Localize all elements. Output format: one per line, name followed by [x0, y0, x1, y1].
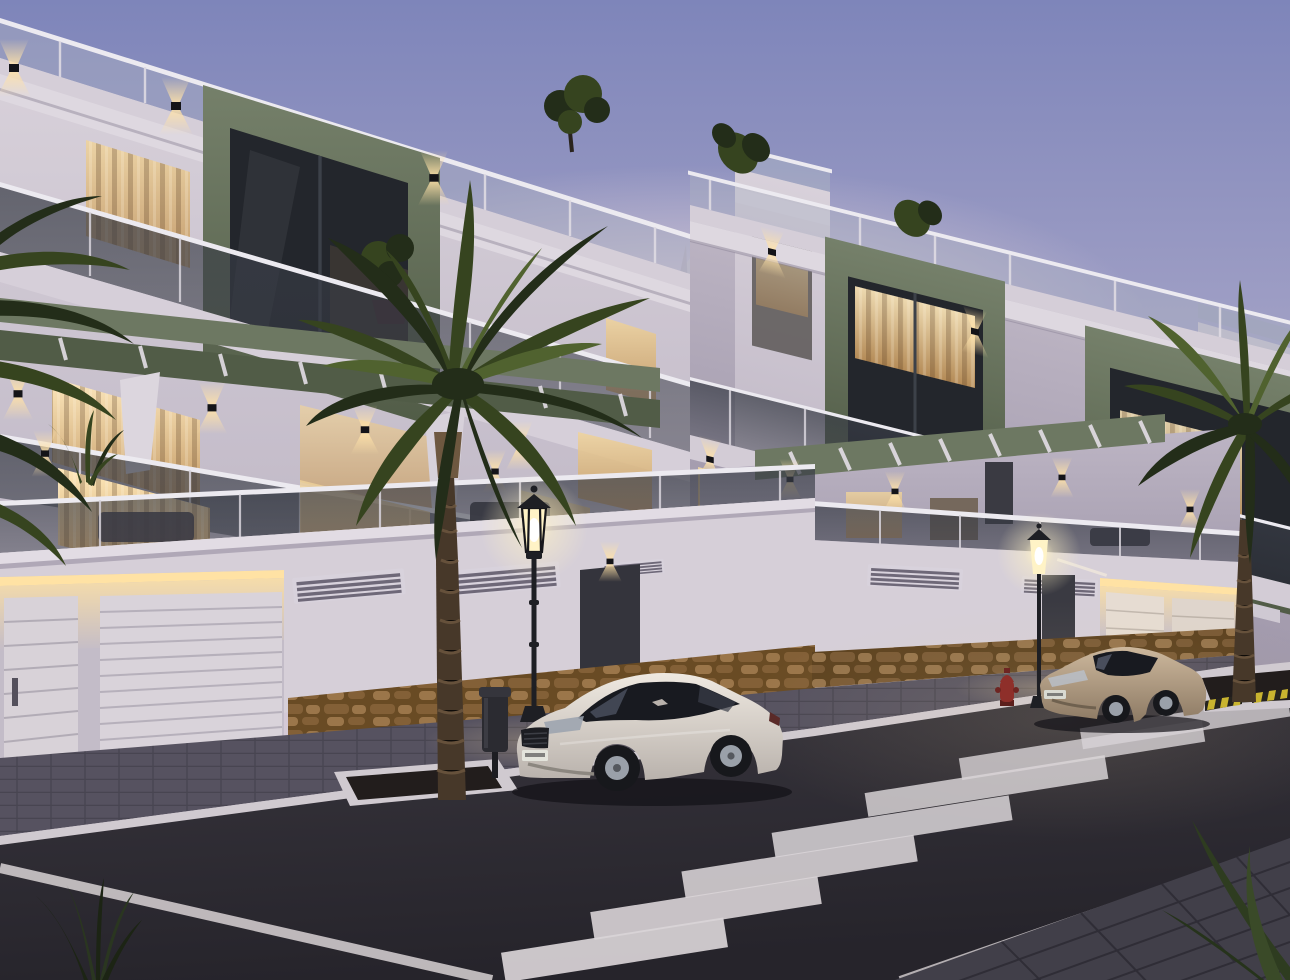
plate-text-smudge — [525, 753, 545, 757]
bin-post — [492, 752, 498, 778]
lamp-pole — [1037, 574, 1041, 698]
wheel-rim — [1109, 702, 1123, 716]
lamp-pole — [532, 556, 537, 706]
lantern-core — [528, 518, 540, 542]
lantern-core — [1035, 547, 1044, 565]
lantern-finial — [1036, 523, 1041, 528]
wheel-rim — [1160, 697, 1173, 710]
hydrant-nut — [1004, 668, 1010, 673]
lantern-finial — [531, 486, 538, 493]
hydrant-cap — [1013, 687, 1019, 693]
render-canvas — [0, 0, 1290, 980]
wheel-hub — [613, 764, 621, 772]
wheel-hub — [727, 752, 734, 759]
frond-crown-center — [1228, 413, 1262, 435]
pole-ring — [529, 600, 539, 605]
hydrant-cap — [995, 687, 1001, 693]
architectural-render-image — [0, 0, 1290, 980]
car-shadow — [512, 778, 792, 806]
lantern-collar — [526, 552, 542, 559]
bin-highlight — [484, 698, 488, 748]
plate-text-smudge — [1047, 693, 1063, 696]
frond-crown-center — [432, 368, 484, 400]
door-handle — [12, 678, 18, 706]
pole-ring — [529, 642, 539, 647]
